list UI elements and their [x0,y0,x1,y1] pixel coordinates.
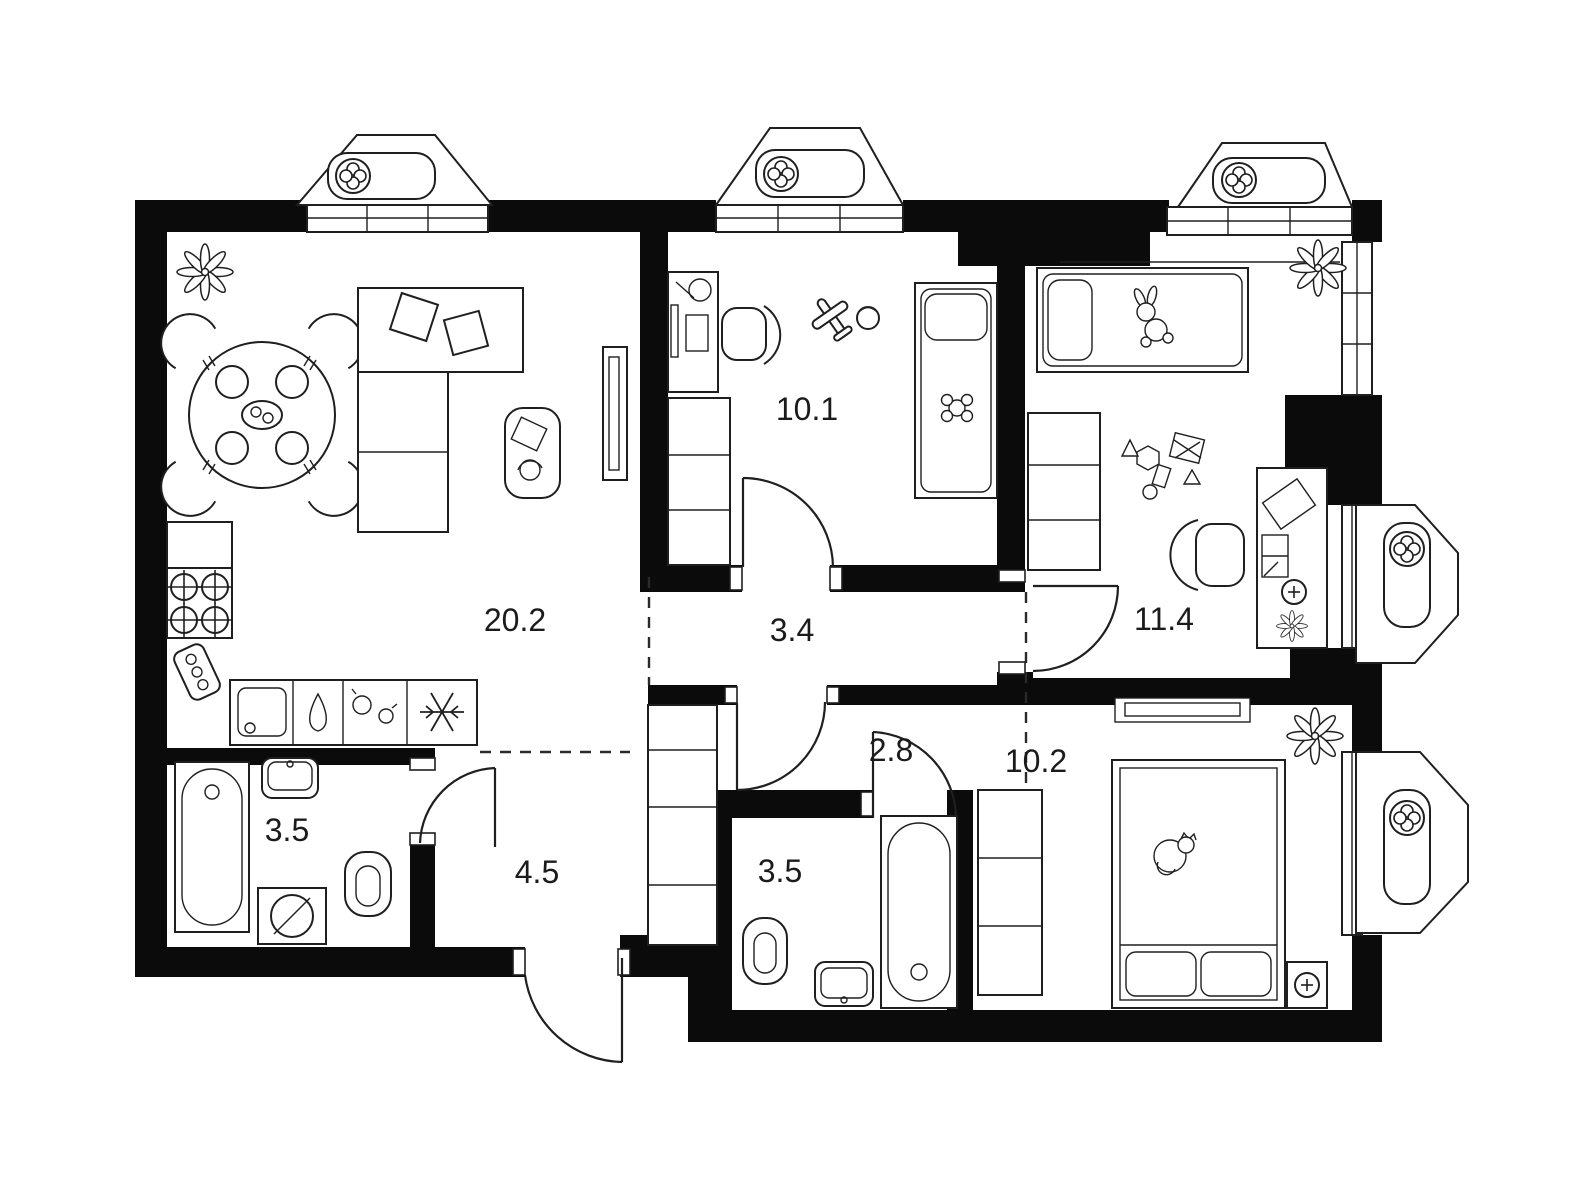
socket-icon [1282,580,1306,604]
bedside-table [1287,962,1327,1008]
window-right-upper [1342,242,1372,395]
label-bedroom: 10.2 [1005,743,1067,779]
label-inner-hallway: 3.4 [770,612,814,648]
bathtub [175,762,249,932]
kitchen-sink-icon [238,688,286,736]
side-table [505,408,560,498]
sink [262,758,318,798]
label-kids-room-2: 11.4 [1134,601,1194,637]
desk [1257,468,1327,648]
label-entry-hallway: 4.5 [515,854,559,890]
label-bathroom-middle: 3.5 [758,853,802,889]
single-bed [1037,268,1248,372]
hall-closets [648,705,717,945]
desk-plant-icon [1277,611,1308,642]
plant-icon [177,244,233,300]
floor-plan: 20.2 10.1 3.4 11.4 2.8 10.2 3.5 4.5 3.5 [0,0,1594,1196]
washing-machine [258,888,326,944]
window-kids-1 [716,205,903,232]
tv-unit [603,347,627,480]
label-bathroom-left: 3.5 [265,812,309,848]
plant-icon [1290,240,1346,296]
window-kids-2 [1167,207,1352,235]
toilet [743,918,787,984]
label-kids-room-1: 10.1 [776,391,838,427]
wardrobe [1028,413,1100,570]
window-living [307,205,488,232]
desk [668,272,718,392]
wall-niche [1115,698,1250,722]
double-bed [1112,760,1285,1008]
stove [167,568,232,638]
floor-plan-svg: 20.2 10.1 3.4 11.4 2.8 10.2 3.5 4.5 3.5 [0,0,1594,1196]
toy-ball [857,307,879,329]
label-corridor: 2.8 [869,732,913,768]
plant-icon [1287,708,1343,764]
wardrobe [668,398,730,565]
label-living-kitchen: 20.2 [484,602,546,638]
bathtub [881,816,957,1008]
toilet [345,852,391,916]
kitchen-counter [230,680,477,745]
lamp-icon [1295,973,1319,997]
sink [815,962,873,1006]
single-bed [915,283,997,498]
wardrobe [978,790,1042,995]
